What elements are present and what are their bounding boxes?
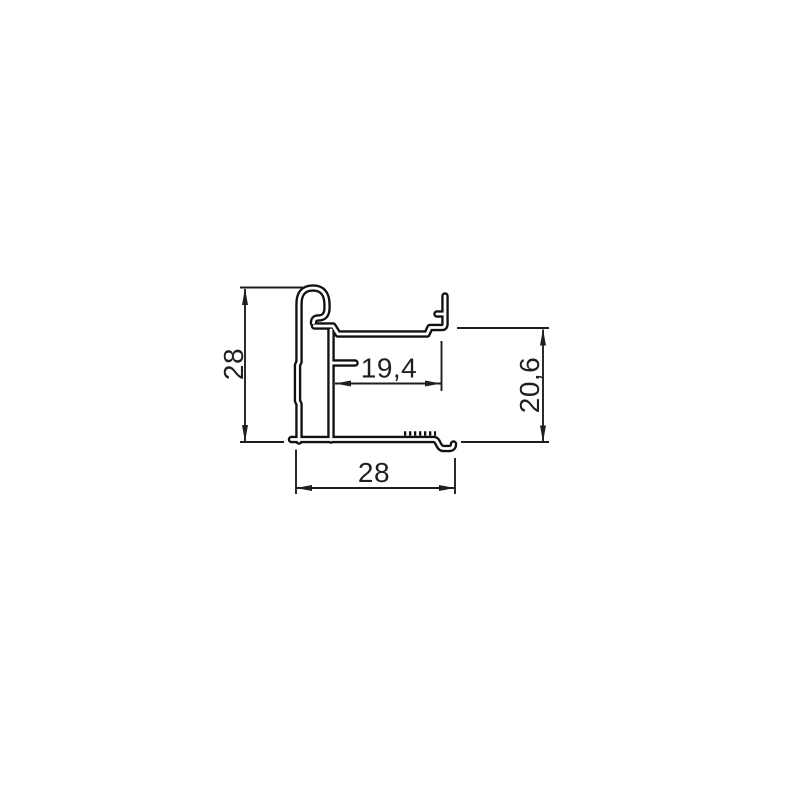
dimension-bottom-width: 28 (296, 450, 455, 495)
arrow-left-icon (335, 381, 351, 387)
dimension-right-height: 20,6 (457, 328, 549, 442)
technical-drawing-page: 28 19,4 20,6 28 (0, 0, 800, 800)
arrow-down-icon (242, 425, 248, 442)
arrow-right-icon (439, 485, 455, 491)
arrow-up-icon (242, 288, 248, 305)
dimension-label-inner-width: 19,4 (361, 353, 418, 384)
profile-core-line (315, 296, 446, 334)
arrow-down-icon (540, 426, 546, 443)
dimension-label-left-height: 28 (218, 348, 249, 380)
arrow-left-icon (296, 485, 312, 491)
dimension-label-right-height: 20,6 (514, 357, 545, 414)
arrow-right-icon (425, 381, 441, 387)
dimension-left-height: 28 (218, 288, 303, 443)
profile-cross-section-drawing: 28 19,4 20,6 28 (0, 0, 800, 800)
profile-left-wall-hook (298, 288, 328, 441)
arrow-up-icon (540, 329, 546, 346)
profile-core-line (292, 440, 454, 449)
dimension-label-bottom-width: 28 (358, 457, 390, 488)
